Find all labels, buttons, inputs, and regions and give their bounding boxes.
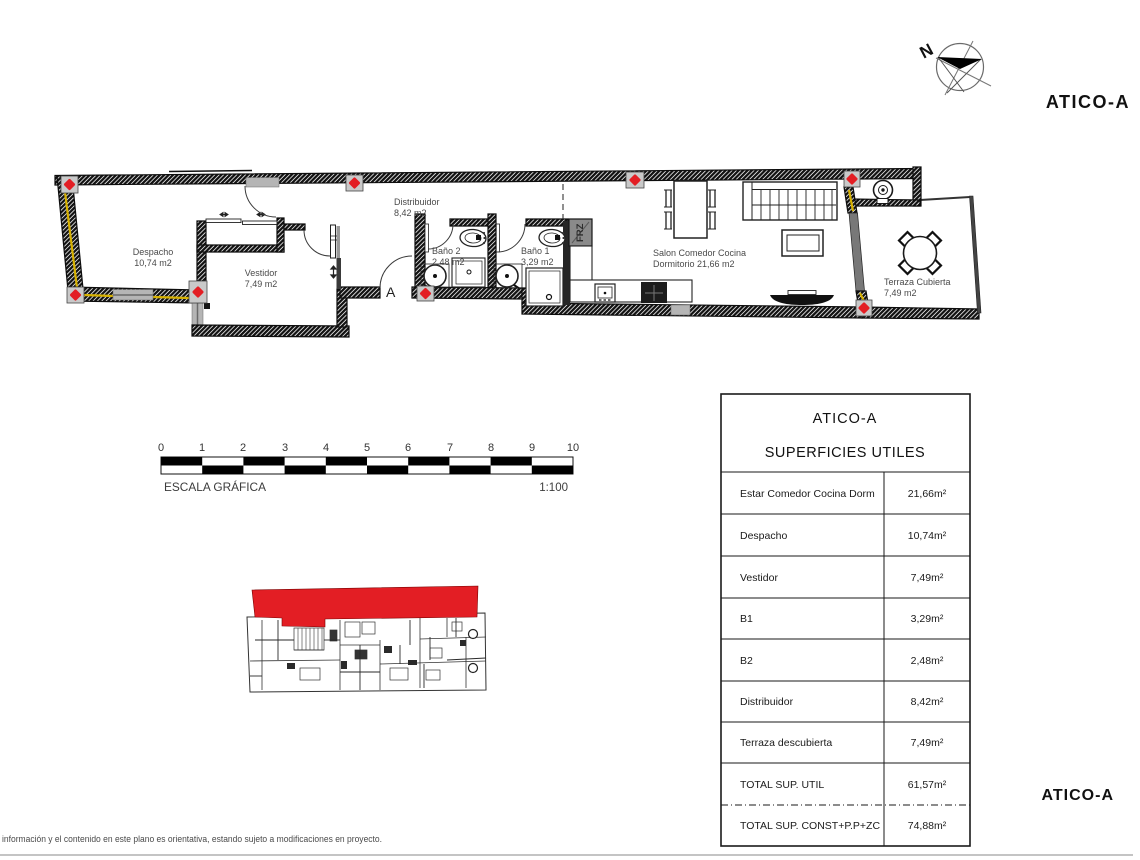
svg-text:5: 5: [364, 442, 370, 454]
svg-text:2,48 m2: 2,48 m2: [432, 257, 465, 267]
svg-text:Baño 2: Baño 2: [432, 246, 461, 256]
svg-text:Salon Comedor Cocina: Salon Comedor Cocina: [653, 248, 746, 258]
svg-text:Terraza descubierta: Terraza descubierta: [740, 737, 832, 749]
svg-text:SUPERFICIES UTILES: SUPERFICIES UTILES: [765, 445, 925, 461]
svg-text:Estar Comedor Cocina Dorm: Estar Comedor Cocina Dorm: [740, 488, 875, 500]
svg-text:Despacho: Despacho: [740, 530, 787, 542]
svg-text:61,57m²: 61,57m²: [908, 779, 947, 791]
svg-text:TOTAL SUP. UTIL: TOTAL SUP. UTIL: [740, 779, 824, 791]
svg-text:7,49m²: 7,49m²: [911, 572, 944, 584]
svg-text:información y el contenido en: información y el contenido en este plano…: [2, 834, 382, 844]
svg-text:6: 6: [405, 442, 411, 454]
svg-text:A: A: [386, 284, 396, 300]
svg-text:ATICO-A: ATICO-A: [813, 411, 878, 427]
svg-text:2: 2: [240, 442, 246, 454]
svg-text:Baño 1: Baño 1: [521, 246, 550, 256]
svg-text:Distribuidor: Distribuidor: [394, 197, 440, 207]
svg-text:3,29m²: 3,29m²: [911, 613, 944, 625]
svg-text:ESCALA GRÁFICA: ESCALA GRÁFICA: [164, 481, 266, 494]
svg-text:Vestidor: Vestidor: [740, 572, 778, 584]
svg-text:ATICO-A: ATICO-A: [1046, 92, 1130, 112]
svg-text:9: 9: [529, 442, 535, 454]
svg-text:B1: B1: [740, 613, 753, 625]
svg-text:B2: B2: [740, 655, 753, 667]
svg-text:7,49m²: 7,49m²: [911, 737, 944, 749]
svg-text:8: 8: [488, 442, 494, 454]
svg-text:8,42m²: 8,42m²: [911, 696, 944, 708]
svg-text:10,74 m2: 10,74 m2: [134, 258, 172, 268]
svg-text:3,29 m2: 3,29 m2: [521, 257, 554, 267]
svg-text:3: 3: [282, 442, 288, 454]
svg-text:7,49 m2: 7,49 m2: [884, 288, 917, 298]
svg-text:Terraza Cubierta: Terraza Cubierta: [884, 277, 951, 287]
svg-text:TOTAL SUP. CONST+P.P+ZC: TOTAL SUP. CONST+P.P+ZC: [740, 820, 880, 832]
svg-text:FRZ: FRZ: [575, 223, 586, 242]
svg-text:7: 7: [447, 442, 453, 454]
svg-text:0: 0: [158, 442, 164, 454]
svg-text:4: 4: [323, 442, 329, 454]
svg-text:Dormitorio 21,66 m2: Dormitorio 21,66 m2: [653, 259, 735, 269]
svg-text:10,74m²: 10,74m²: [908, 530, 947, 542]
svg-text:7,49 m2: 7,49 m2: [245, 279, 278, 289]
svg-text:8,42 m2: 8,42 m2: [394, 208, 427, 218]
svg-text:Distribuidor: Distribuidor: [740, 696, 794, 708]
svg-text:10: 10: [567, 442, 579, 454]
svg-text:1: 1: [199, 442, 205, 454]
svg-text:21,66m²: 21,66m²: [908, 488, 947, 500]
svg-text:1:100: 1:100: [539, 482, 568, 494]
svg-text:Despacho: Despacho: [133, 247, 174, 257]
svg-text:2,48m²: 2,48m²: [911, 655, 944, 667]
svg-text:ATICO-A: ATICO-A: [1042, 787, 1114, 804]
svg-text:Vestidor: Vestidor: [245, 268, 278, 278]
svg-text:74,88m²: 74,88m²: [908, 820, 947, 832]
